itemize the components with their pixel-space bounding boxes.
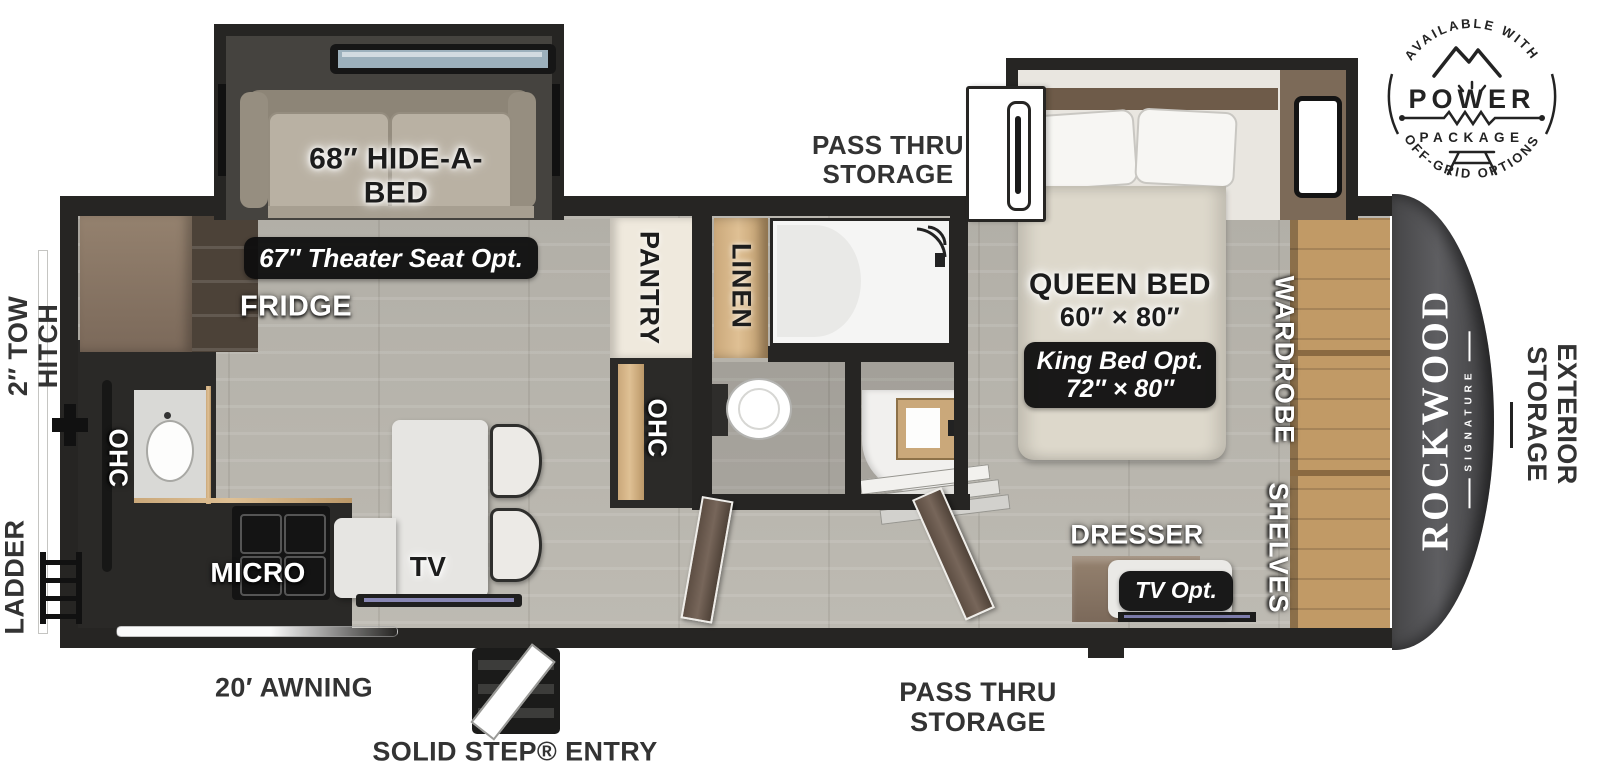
- ladder-label: LADDER: [0, 520, 31, 635]
- wardrobe-label: WARDROBE: [1269, 276, 1300, 445]
- stove-grate: [284, 514, 326, 554]
- vanity-basin: [906, 408, 940, 448]
- fridge-cabinet: [192, 212, 258, 352]
- mountain-icon: [1434, 48, 1500, 76]
- dinette-chair: [490, 424, 542, 498]
- shower-head-icon: [895, 223, 947, 271]
- signature-rule: [1468, 479, 1470, 509]
- skylight-glass: [338, 50, 548, 68]
- bottom-notch: [1088, 646, 1124, 658]
- queen-bed-label: QUEEN BED 60″ × 80″: [1029, 268, 1211, 332]
- bedroom-window: [1294, 96, 1342, 198]
- awning-rail: [116, 626, 398, 637]
- shower-front-wall: [768, 346, 968, 362]
- wardrobe-shelf-divider: [1290, 350, 1390, 356]
- toilet-seat-ring: [738, 388, 780, 430]
- ohc-hall-label: OHC: [642, 399, 673, 458]
- tv-screen-line: [364, 598, 514, 602]
- kitchen-sink: [146, 420, 194, 482]
- slide-window: [552, 84, 560, 176]
- shower-pan: [777, 225, 861, 337]
- slide-window: [218, 84, 226, 176]
- vanity-sink: [896, 398, 960, 460]
- badge-side-arc: [1389, 74, 1398, 134]
- bath-right-upper-wall: [950, 216, 968, 362]
- living-tv: [356, 594, 522, 607]
- shelves-label: SHELVES: [1263, 482, 1294, 613]
- fridge-label: FRIDGE: [240, 291, 352, 324]
- ladder-rung: [44, 596, 78, 601]
- stove-grate: [240, 514, 282, 554]
- pillow: [1134, 107, 1238, 188]
- toilet-bowl: [726, 378, 792, 440]
- linen-label: LINEN: [726, 243, 757, 329]
- ladder-icon: [40, 552, 82, 624]
- king-bed-option-pill: King Bed Opt. 72″ × 80″: [1024, 342, 1216, 408]
- skylight: [330, 44, 556, 74]
- wardrobe-unit: [1290, 218, 1390, 628]
- micro-label: MICRO: [210, 557, 305, 589]
- dinette-table-foot: [334, 518, 396, 598]
- headboard: [1026, 88, 1278, 110]
- hide-a-bed-label: 68″ HIDE-A- BED: [309, 142, 483, 209]
- exterior-storage-label: EXTERIOR STORAGE: [1522, 343, 1582, 484]
- kitchen-faucet: [164, 412, 171, 419]
- floorplan-canvas: ROCKWOOD SIGNATURE: [0, 0, 1600, 774]
- theater-seat-option-pill: 67″ Theater Seat Opt.: [244, 237, 538, 279]
- signature-rule: [1468, 331, 1470, 361]
- rockwood-sub: SIGNATURE: [1464, 368, 1475, 471]
- awning-label: 20′ AWNING: [215, 673, 373, 704]
- counter-trim-vertical: [206, 386, 211, 504]
- bedroom-tv-screen-line: [1124, 615, 1250, 618]
- tow-hitch-label: 2″ TOW HITCH: [3, 296, 63, 396]
- entry-label: SOLID STEP® ENTRY: [372, 737, 657, 768]
- rockwood-signature-row: SIGNATURE: [1464, 289, 1475, 552]
- pass-thru-handle-slot: [1015, 116, 1021, 194]
- pass-thru-handle: [1007, 101, 1031, 211]
- pass-thru-storage-bottom-label: PASS THRU STORAGE: [899, 677, 1057, 737]
- badge-package-text: PACKAGE: [1419, 130, 1524, 145]
- sofa-arm: [508, 92, 536, 208]
- pillow: [1033, 109, 1138, 192]
- rockwood-brand: ROCKWOOD: [1414, 289, 1458, 552]
- shower: [770, 218, 952, 346]
- vanity-right-wall: [954, 362, 968, 510]
- exterior-storage-handle: [1510, 402, 1513, 448]
- tv-option-pill: TV Opt.: [1119, 571, 1233, 611]
- ladder-rung: [44, 614, 78, 619]
- skylight-glare: [342, 52, 542, 57]
- ladder-rung: [44, 578, 78, 583]
- sofa-arm: [240, 92, 268, 208]
- bedroom-tv: [1118, 612, 1256, 622]
- ohc-kitchen-label: OHC: [103, 429, 134, 488]
- pantry-bath-wall: [692, 216, 712, 508]
- pantry-label: PANTRY: [634, 231, 665, 345]
- dinette-chair: [490, 508, 542, 582]
- hall-ohc-cabinet: [618, 364, 644, 500]
- dresser-label: DRESSER: [1070, 520, 1203, 551]
- ladder-rung: [44, 560, 78, 565]
- rear-cabinet: [80, 212, 192, 352]
- tv-label: TV: [410, 551, 447, 583]
- toilet-vanity-wall: [845, 362, 861, 508]
- hitch-receiver-icon-cross: [52, 418, 88, 432]
- pass-thru-storage-box: [966, 86, 1046, 222]
- counter-trim-horizontal: [134, 498, 352, 503]
- pass-thru-storage-top-label: PASS THRU STORAGE: [812, 131, 964, 189]
- power-package-badge: AVAILABLE WITH OFF-GRID OPTIONS POWER PA…: [1372, 2, 1572, 198]
- badge-side-arc: [1546, 74, 1555, 134]
- entry-steps: [472, 648, 560, 734]
- wardrobe-shelf-divider: [1290, 470, 1390, 476]
